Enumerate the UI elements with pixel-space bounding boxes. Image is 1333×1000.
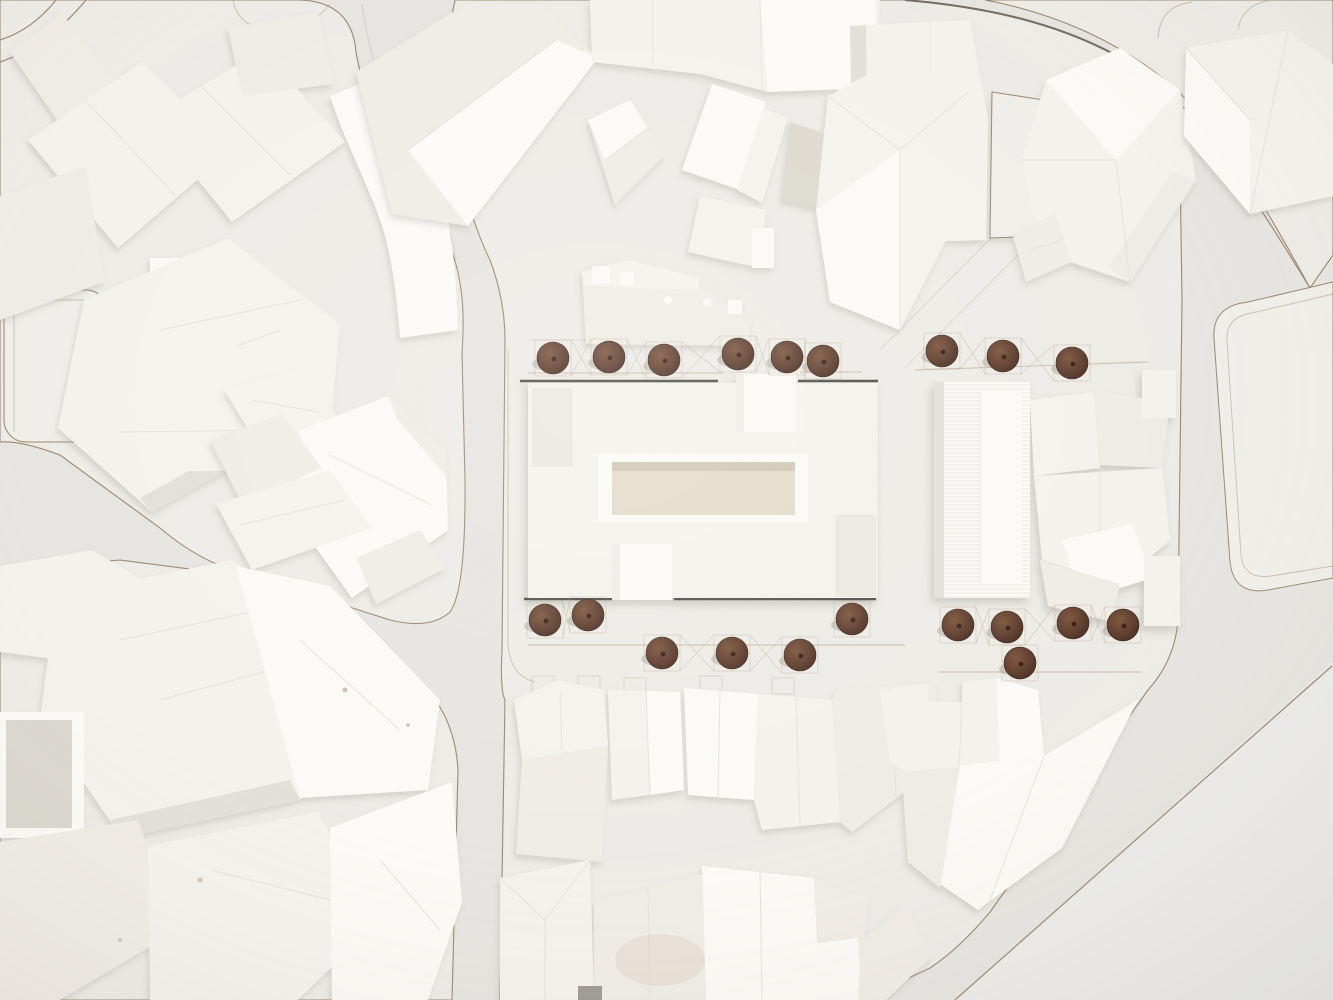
photo-vignette xyxy=(0,0,1333,1000)
model-photograph: Top-down photograph of a white architect… xyxy=(0,0,1333,1000)
model-scene: Top-down photograph of a white architect… xyxy=(0,0,1333,1000)
